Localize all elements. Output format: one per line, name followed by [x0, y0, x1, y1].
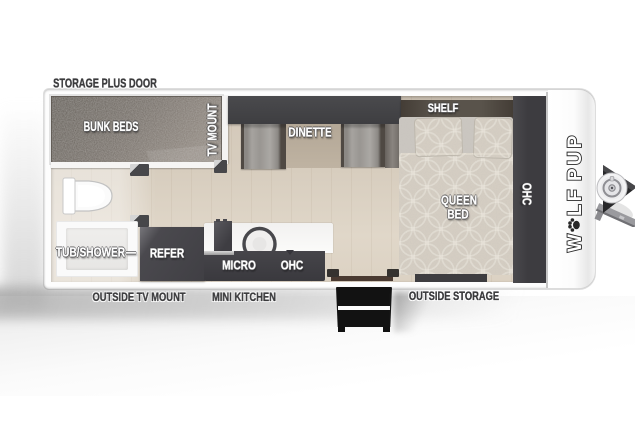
- svg-text:PUP: PUP: [565, 132, 586, 181]
- svg-text:W: W: [565, 231, 586, 252]
- svg-text:LF: LF: [565, 186, 586, 216]
